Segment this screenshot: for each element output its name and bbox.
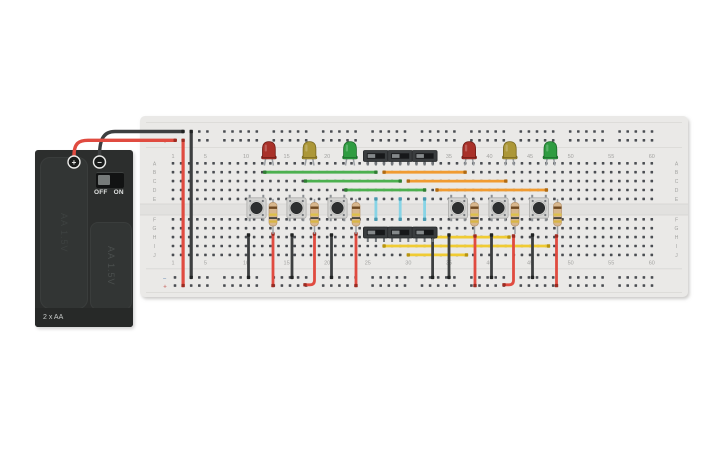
resistor-band — [311, 214, 319, 216]
breadboard-hole — [237, 171, 240, 174]
led-body — [503, 142, 516, 158]
breadboard-hole — [618, 245, 621, 248]
led-highlight — [346, 145, 348, 152]
breadboard-hole — [643, 139, 646, 142]
breadboard-hole — [204, 180, 207, 183]
breadboard-hole — [643, 276, 646, 279]
breadboard-hole — [371, 130, 374, 133]
breadboard-hole — [229, 171, 232, 174]
breadboard-hole — [273, 139, 276, 142]
breadboard-hole — [285, 245, 288, 248]
wire-green-row-b-cap — [374, 171, 377, 174]
breadboard-hole — [206, 130, 209, 133]
breadboard-hole — [204, 218, 207, 221]
breadboard-hole — [602, 254, 605, 257]
breadboard-hole — [212, 236, 215, 239]
breadboard-hole — [602, 171, 605, 174]
led-body — [544, 142, 557, 158]
breadboard-hole — [569, 139, 572, 142]
breadboard-hole — [245, 171, 248, 174]
breadboard-hole — [421, 139, 424, 142]
breadboard-hole — [610, 218, 613, 221]
switch-slider-knob[interactable] — [416, 231, 424, 235]
breadboard-hole — [635, 139, 638, 142]
breadboard-hole — [404, 139, 407, 142]
breadboard-hole — [379, 276, 382, 279]
wire-cyan-1-cap — [374, 197, 377, 200]
breadboard-hole — [318, 189, 321, 192]
breadboard-hole — [635, 130, 638, 133]
breadboard-hole — [293, 236, 296, 239]
breadboard-hole — [602, 162, 605, 165]
button-corner-pin — [532, 200, 534, 202]
breadboard-hole — [626, 254, 629, 257]
breadboard-hole — [494, 284, 497, 287]
breadboard-hole — [204, 162, 207, 165]
breadboard-hole — [253, 180, 256, 183]
breadboard-hole — [470, 284, 473, 287]
breadboard-hole — [220, 254, 223, 257]
column-number: 40 — [486, 154, 492, 160]
breadboard-hole — [496, 254, 499, 257]
breadboard-hole — [237, 162, 240, 165]
breadboard-hole — [229, 189, 232, 192]
breadboard-hole — [256, 276, 259, 279]
breadboard-hole — [421, 130, 424, 133]
breadboard-hole — [297, 284, 300, 287]
breadboard-hole — [610, 162, 613, 165]
wire-red-6-cap — [555, 234, 558, 237]
breadboard-hole — [229, 236, 232, 239]
breadboard-hole — [326, 189, 329, 192]
rail-jumper-black-cap — [190, 276, 193, 279]
row-letter: H — [675, 235, 679, 241]
breadboard-hole — [318, 236, 321, 239]
wire-cyan-1-cap — [374, 218, 377, 221]
breadboard-hole — [212, 245, 215, 248]
breadboard-hole — [302, 254, 305, 257]
breadboard-hole — [302, 245, 305, 248]
wire-red-2-cap — [303, 283, 306, 286]
breadboard-hole — [651, 276, 654, 279]
button-cap[interactable] — [291, 202, 303, 214]
breadboard-hole — [204, 227, 207, 230]
breadboard-hole — [338, 130, 341, 133]
pushbutton-3[interactable] — [328, 195, 347, 221]
breadboard-hole — [651, 284, 654, 287]
breadboard-hole — [610, 227, 613, 230]
rail-marker: + — [163, 285, 167, 291]
slide-switch-bottom-2[interactable] — [388, 227, 413, 242]
wire-yellow-row-j-cap — [465, 253, 468, 256]
breadboard-hole — [220, 245, 223, 248]
breadboard-hole — [529, 180, 532, 183]
button-cap[interactable] — [533, 202, 545, 214]
breadboard-hole — [310, 198, 313, 201]
breadboard-hole — [198, 139, 201, 142]
breadboard-hole — [585, 276, 588, 279]
slide-switch-bottom-3[interactable] — [412, 227, 437, 242]
breadboard-center-channel — [140, 204, 688, 215]
breadboard-hole — [350, 162, 353, 165]
button-corner-pin — [451, 214, 453, 216]
breadboard-hole — [537, 227, 540, 230]
switch-slider-knob[interactable] — [416, 154, 424, 158]
breadboard-hole — [439, 198, 442, 201]
resistor-band — [511, 207, 519, 209]
breadboard-hole — [342, 236, 345, 239]
resistor-band — [311, 217, 319, 219]
wire-black-7-cap — [531, 233, 534, 236]
slide-switch-bottom-1[interactable] — [363, 227, 388, 242]
breadboard-hole — [285, 189, 288, 192]
breadboard-hole — [196, 245, 199, 248]
breadboard-hole — [237, 236, 240, 239]
wire-black-1-cap — [247, 233, 250, 236]
breadboard-hole — [651, 130, 654, 133]
breadboard-hole — [247, 139, 250, 142]
breadboard-hole — [379, 284, 382, 287]
breadboard-hole — [445, 130, 448, 133]
breadboard-hole — [172, 218, 175, 221]
breadboard-hole — [528, 284, 531, 287]
breadboard-hole — [253, 171, 256, 174]
breadboard-hole — [553, 227, 556, 230]
pushbutton-1[interactable] — [247, 195, 266, 221]
breadboard-hole — [635, 284, 638, 287]
breadboard-hole — [346, 130, 349, 133]
wire-orange-row-c-cap — [407, 179, 410, 182]
slide-switch-top-3[interactable] — [412, 151, 437, 166]
breadboard-hole — [281, 284, 284, 287]
breadboard-hole — [326, 218, 329, 221]
breadboard-hole — [650, 227, 653, 230]
battery-wire-negative-cap — [181, 130, 184, 133]
breadboard-hole — [388, 276, 391, 279]
breadboard-hole — [261, 245, 264, 248]
breadboard-hole — [445, 139, 448, 142]
wire-black-6-cap — [490, 233, 493, 236]
pushbutton-6[interactable] — [529, 195, 548, 221]
breadboard-hole — [322, 276, 325, 279]
resistor-band — [269, 220, 277, 222]
breadboard-hole — [204, 236, 207, 239]
breadboard-hole — [552, 284, 555, 287]
breadboard-hole — [569, 245, 572, 248]
breadboard-hole — [439, 227, 442, 230]
breadboard-hole — [634, 245, 637, 248]
breadboard-hole — [618, 236, 621, 239]
breadboard-hole — [635, 276, 638, 279]
button-corner-pin — [289, 214, 291, 216]
breadboard-hole — [626, 162, 629, 165]
breadboard-hole — [342, 254, 345, 257]
wire-green-row-c-cap — [399, 179, 402, 182]
breadboard-hole — [261, 227, 264, 230]
resistor-band — [554, 220, 562, 222]
breadboard-hole — [293, 180, 296, 183]
breadboard-hole — [561, 227, 564, 230]
breadboard-hole — [486, 130, 489, 133]
button-corner-pin — [451, 200, 453, 202]
breadboard-hole — [196, 227, 199, 230]
breadboard-hole — [297, 130, 300, 133]
column-number: 50 — [568, 154, 574, 160]
breadboard-hole — [358, 245, 361, 248]
breadboard-hole — [293, 254, 296, 257]
button-cap[interactable] — [452, 202, 464, 214]
breadboard-hole — [223, 130, 226, 133]
wire-cyan-2-cap — [399, 218, 402, 221]
breadboard-hole — [204, 189, 207, 192]
breadboard-hole — [520, 284, 523, 287]
resistor-band — [311, 220, 319, 222]
breadboard-hole — [634, 198, 637, 201]
breadboard-hole — [285, 236, 288, 239]
breadboard-hole — [453, 130, 456, 133]
wire-black-7-cap — [531, 276, 534, 279]
breadboard-hole — [545, 171, 548, 174]
breadboard-hole — [305, 130, 308, 133]
column-number: 55 — [608, 154, 614, 160]
button-corner-pin — [249, 214, 251, 216]
breadboard-hole — [404, 130, 407, 133]
breadboard-hole — [634, 227, 637, 230]
breadboard-hole — [212, 198, 215, 201]
breadboard-hole — [561, 198, 564, 201]
breadboard-hole — [196, 254, 199, 257]
breadboard-hole — [198, 284, 201, 287]
breadboard-hole — [585, 284, 588, 287]
breadboard-hole — [172, 171, 175, 174]
breadboard-hole — [285, 218, 288, 221]
breadboard-hole — [421, 276, 424, 279]
pushbutton-5[interactable] — [489, 195, 508, 221]
breadboard-hole — [594, 198, 597, 201]
breadboard-hole — [277, 218, 280, 221]
breadboard-hole — [237, 227, 240, 230]
breadboard-hole — [504, 254, 507, 257]
button-cap[interactable] — [332, 202, 344, 214]
switch-slider-knob[interactable] — [368, 154, 376, 158]
breadboard-hole — [520, 276, 523, 279]
breadboard-hole — [445, 276, 448, 279]
breadboard-hole — [256, 130, 259, 133]
breadboard-hole — [318, 227, 321, 230]
resistor-band — [554, 214, 562, 216]
wire-orange-row-d-cap — [435, 188, 438, 191]
column-number: 5 — [204, 154, 207, 160]
slide-switch-top-1[interactable] — [363, 151, 388, 166]
breadboard-hole — [391, 218, 394, 221]
breadboard-hole — [453, 139, 456, 142]
breadboard-hole — [610, 245, 613, 248]
breadboard-hole — [594, 162, 597, 165]
rail-jumper-red-cap — [181, 139, 184, 142]
button-corner-pin — [544, 200, 546, 202]
button-cap[interactable] — [251, 202, 263, 214]
breadboard-hole — [496, 227, 499, 230]
breadboard-hole — [577, 284, 580, 287]
breadboard-hole — [569, 227, 572, 230]
breadboard-hole — [277, 236, 280, 239]
switch-slider-knob[interactable] — [368, 231, 376, 235]
breadboard-hole — [610, 236, 613, 239]
breadboard-hole — [297, 276, 300, 279]
breadboard-hole — [544, 130, 547, 133]
breadboard-hole — [569, 189, 572, 192]
pushbutton-2[interactable] — [287, 195, 306, 221]
breadboard-hole — [212, 218, 215, 221]
button-corner-pin — [343, 200, 345, 202]
row-letter: F — [153, 217, 156, 223]
resistor-band — [269, 217, 277, 219]
wire-green-row-d-cap — [344, 188, 347, 191]
breadboard-hole — [610, 171, 613, 174]
breadboard-hole — [358, 254, 361, 257]
breadboard-hole — [346, 276, 349, 279]
breadboard-hole — [261, 236, 264, 239]
breadboard-hole — [602, 245, 605, 248]
breadboard-hole — [239, 276, 242, 279]
column-number: 15 — [284, 260, 290, 266]
breadboard-hole — [293, 245, 296, 248]
resistor-band — [311, 207, 319, 209]
button-corner-pin — [289, 200, 291, 202]
breadboard-hole — [537, 180, 540, 183]
breadboard-hole — [237, 189, 240, 192]
breadboard-hole — [330, 284, 333, 287]
breadboard-hole — [229, 180, 232, 183]
breadboard-scene: 1510152025303540455055601510152025303540… — [0, 0, 725, 453]
breadboard-hole — [231, 130, 234, 133]
row-letter: C — [153, 179, 157, 185]
breadboard-hole — [650, 218, 653, 221]
breadboard-hole — [245, 227, 248, 230]
breadboard-hole — [204, 245, 207, 248]
breadboard-hole — [561, 254, 564, 257]
breadboard-hole — [529, 254, 532, 257]
breadboard-hole — [618, 130, 621, 133]
column-number: 60 — [649, 260, 655, 266]
column-number: 35 — [446, 154, 452, 160]
breadboard-hole — [470, 139, 473, 142]
breadboard-hole — [643, 284, 646, 287]
breadboard-hole — [464, 227, 467, 230]
breadboard-hole — [503, 276, 506, 279]
breadboard-hole — [561, 245, 564, 248]
breadboard-hole — [338, 276, 341, 279]
wire-yellow-row-i-cap — [382, 244, 385, 247]
breadboard-hole — [650, 180, 653, 183]
breadboard-hole — [310, 227, 313, 230]
breadboard-hole — [220, 218, 223, 221]
breadboard-hole — [346, 139, 349, 142]
breadboard-hole — [586, 236, 589, 239]
breadboard-hole — [371, 284, 374, 287]
breadboard-hole — [261, 162, 264, 165]
breadboard-hole — [618, 284, 621, 287]
breadboard-hole — [577, 198, 580, 201]
breadboard-hole — [577, 162, 580, 165]
breadboard-hole — [470, 276, 473, 279]
breadboard-hole — [601, 284, 604, 287]
breadboard-hole — [618, 171, 621, 174]
wire-red-4-cap — [473, 284, 476, 287]
breadboard-hole — [172, 236, 175, 239]
breadboard-hole — [486, 276, 489, 279]
breadboard-hole — [650, 236, 653, 239]
breadboard-hole — [453, 284, 456, 287]
breadboard-hole — [404, 284, 407, 287]
breadboard-hole — [350, 254, 353, 257]
switch-slider-knob[interactable] — [392, 154, 400, 158]
resistor-band — [269, 214, 277, 216]
pushbutton-4[interactable] — [448, 195, 467, 221]
slide-switch-top-2[interactable] — [388, 151, 413, 166]
breadboard-hole — [404, 276, 407, 279]
breadboard-hole — [289, 139, 292, 142]
wire-red-5-cap — [512, 234, 515, 237]
breadboard-hole — [601, 276, 604, 279]
breadboard-hole — [593, 276, 596, 279]
wire-red-6-cap — [555, 284, 558, 287]
breadboard-hole — [366, 254, 369, 257]
breadboard-hole — [537, 171, 540, 174]
breadboard-hole — [618, 254, 621, 257]
button-cap[interactable] — [493, 202, 505, 214]
breadboard-hole — [223, 276, 226, 279]
breadboard-hole — [229, 162, 232, 165]
button-corner-pin — [302, 214, 304, 216]
breadboard-hole — [172, 180, 175, 183]
row-letter: D — [675, 188, 679, 194]
wire-orange-row-d-cap — [545, 188, 548, 191]
resistor-band — [471, 214, 479, 216]
breadboard-hole — [626, 284, 629, 287]
breadboard-hole — [480, 198, 483, 201]
breadboard-hole — [602, 180, 605, 183]
breadboard-hole — [626, 198, 629, 201]
breadboard-hole — [634, 254, 637, 257]
breadboard-hole — [237, 245, 240, 248]
breadboard-hole — [577, 245, 580, 248]
breadboard-hole — [375, 254, 378, 257]
breadboard-hole — [326, 227, 329, 230]
resistor-band — [352, 214, 360, 216]
breadboard-hole — [642, 171, 645, 174]
breadboard-hole — [634, 171, 637, 174]
switch-slider-knob[interactable] — [392, 231, 400, 235]
breadboard-hole — [334, 162, 337, 165]
button-corner-pin — [532, 214, 534, 216]
breadboard-hole — [212, 227, 215, 230]
breadboard-hole — [448, 227, 451, 230]
resistor-band — [511, 214, 519, 216]
breadboard-hole — [536, 139, 539, 142]
breadboard-hole — [626, 180, 629, 183]
breadboard-hole — [577, 180, 580, 183]
breadboard-hole — [594, 254, 597, 257]
breadboard-hole — [577, 227, 580, 230]
button-corner-pin — [504, 200, 506, 202]
wire-green-row-b-cap — [263, 171, 266, 174]
breadboard-hole — [552, 130, 555, 133]
breadboard-hole — [212, 189, 215, 192]
breadboard-hole — [342, 162, 345, 165]
breadboard-hole — [602, 227, 605, 230]
breadboard-hole — [496, 162, 499, 165]
